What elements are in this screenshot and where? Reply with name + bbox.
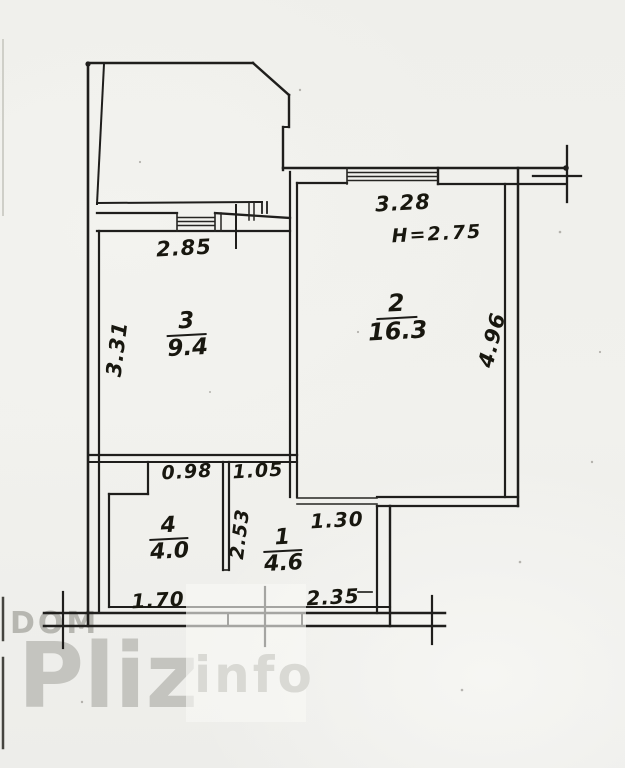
room-1-label: 1 4.6 — [262, 525, 304, 576]
dim-room2-width: 3.28 — [374, 190, 431, 217]
room-4-number: 4 — [148, 513, 189, 541]
dim-room3-width: 2.85 — [155, 235, 212, 262]
room3-window — [177, 213, 221, 231]
room-3-label: 3 9.4 — [165, 308, 208, 361]
room2-window — [347, 168, 438, 184]
room-4-area: 4.0 — [150, 538, 190, 565]
dimension-ticks — [63, 146, 581, 648]
dim-room4-bottom: 1.70 — [131, 587, 186, 614]
room-4-label: 4 4.0 — [148, 513, 190, 564]
room-1-area: 4.6 — [264, 550, 304, 577]
dim-room1-bottom: 2.35 — [306, 584, 361, 611]
room-2-label: 2 16.3 — [366, 289, 428, 345]
dim-room1-niche: 1.30 — [310, 507, 365, 534]
room-1-number: 1 — [262, 525, 303, 553]
watermark-info: info — [194, 646, 315, 704]
floor-plan-scan: DOM Pliz — [0, 0, 625, 768]
dim-room4-top: 0.98 — [161, 460, 213, 485]
dim-room1-top: 1.05 — [232, 459, 284, 484]
room-3-number: 3 — [166, 308, 207, 337]
room-2-area: 16.3 — [367, 316, 428, 347]
balcony-outline — [85, 61, 289, 213]
room-3-area: 9.4 — [167, 334, 209, 362]
